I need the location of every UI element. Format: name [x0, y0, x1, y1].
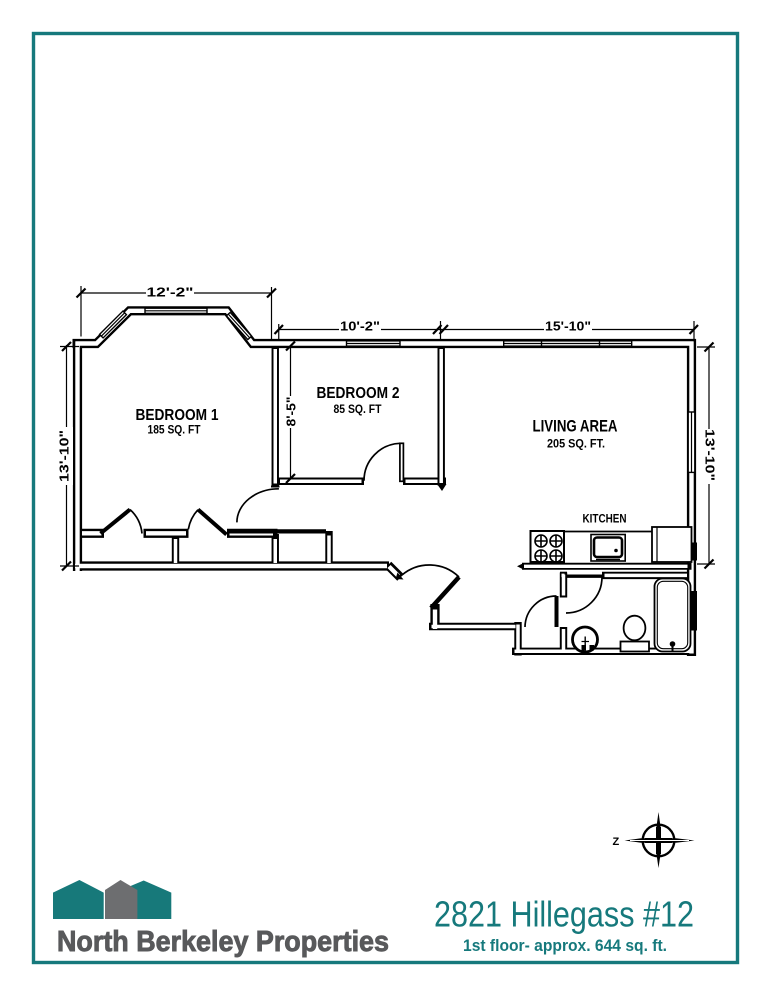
svg-text:BEDROOM 2: BEDROOM 2	[317, 385, 400, 402]
svg-text:North Berkeley Properties: North Berkeley Properties	[57, 926, 389, 958]
svg-text:13'-10": 13'-10"	[703, 429, 717, 481]
svg-text:LIVING AREA: LIVING AREA	[533, 417, 618, 436]
svg-text:15'-10": 15'-10"	[545, 320, 591, 334]
svg-text:13'-10": 13'-10"	[58, 430, 72, 482]
svg-text:1st floor- approx. 644 sq. ft.: 1st floor- approx. 644 sq. ft.	[463, 936, 667, 955]
svg-text:205 SQ. FT.: 205 SQ. FT.	[547, 437, 605, 451]
svg-text:85 SQ. FT: 85 SQ. FT	[334, 403, 382, 416]
svg-text:2821 Hillegass #12: 2821 Hillegass #12	[434, 894, 694, 935]
svg-text:Z: Z	[613, 836, 620, 848]
svg-text:BEDROOM 1: BEDROOM 1	[136, 407, 219, 424]
svg-text:185 SQ. FT: 185 SQ. FT	[148, 424, 201, 437]
svg-text:12'-2": 12'-2"	[147, 286, 194, 300]
svg-text:KITCHEN: KITCHEN	[583, 512, 627, 526]
svg-text:8'-5": 8'-5"	[285, 396, 299, 426]
svg-text:10'-2": 10'-2"	[340, 320, 380, 334]
